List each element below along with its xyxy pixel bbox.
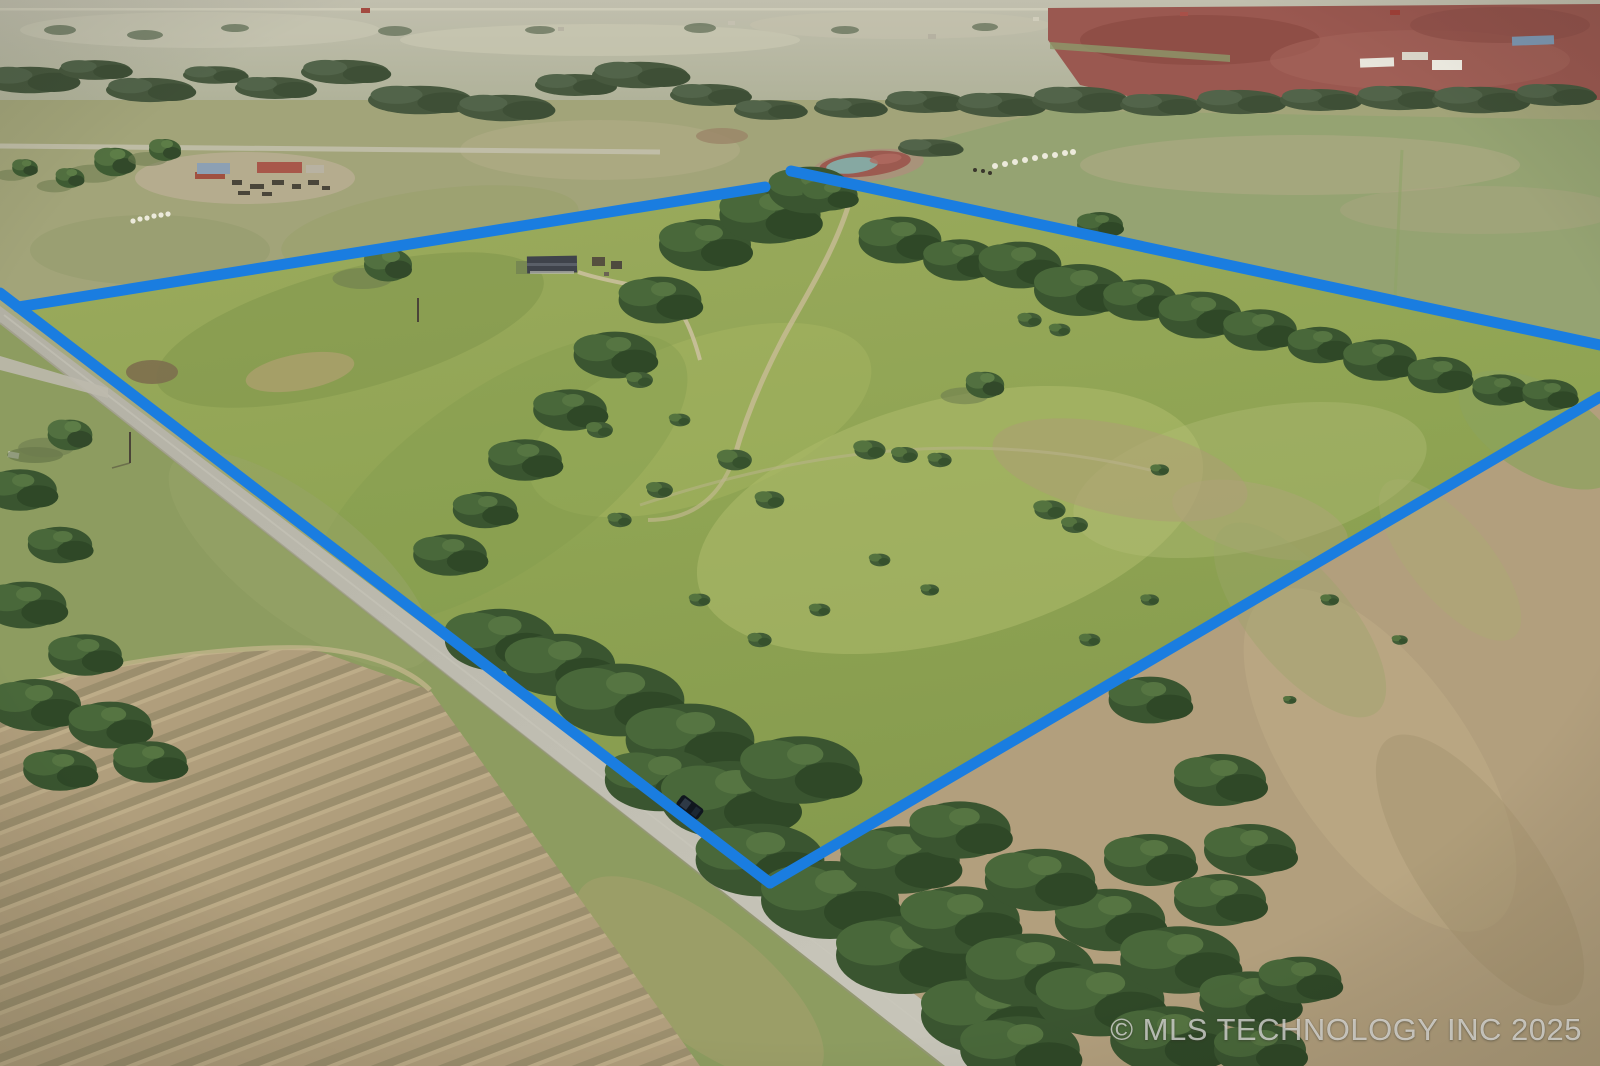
vignette [0, 0, 1600, 1066]
aerial-photo: © MLS TECHNOLOGY INC 2025 [0, 0, 1600, 1066]
mls-watermark: © MLS TECHNOLOGY INC 2025 [1110, 1012, 1582, 1048]
scene [0, 0, 1600, 1066]
